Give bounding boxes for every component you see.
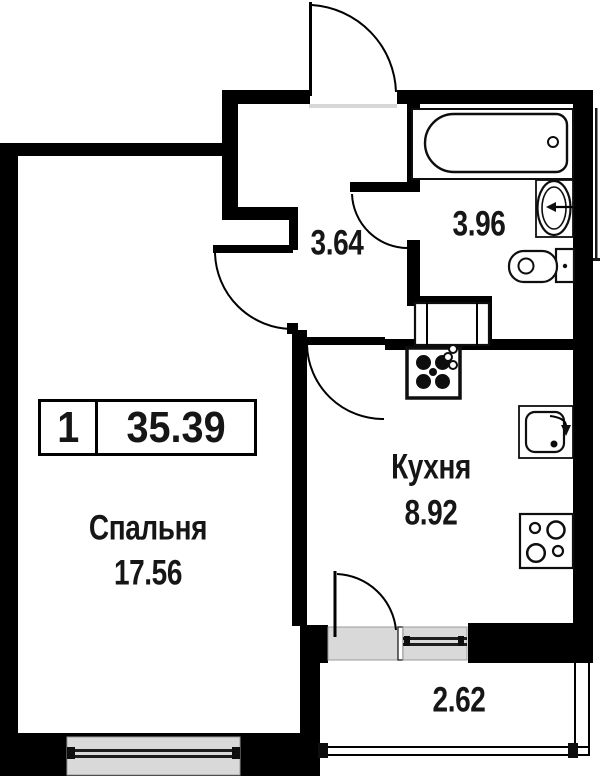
wall-right bbox=[573, 90, 593, 663]
wall-top-left-of-entrance bbox=[222, 90, 310, 104]
toilet-bowl-inner bbox=[519, 259, 534, 274]
stove-burner-icon bbox=[530, 523, 540, 533]
stove-burner-icon bbox=[553, 546, 563, 556]
balcony-rail-end-cap bbox=[568, 743, 578, 758]
badge-rooms-count: 1 bbox=[41, 402, 98, 453]
wall-hall-step-vertical bbox=[222, 90, 238, 220]
balcony-window-glazing-line bbox=[403, 637, 467, 640]
stove-burner-icon bbox=[527, 544, 545, 562]
bedroom-door-swing-arc bbox=[215, 253, 292, 329]
bedroom-window-glazing-line bbox=[67, 749, 240, 752]
fan-petal-icon bbox=[435, 374, 450, 389]
riser-pipe-icon bbox=[444, 353, 452, 361]
badge-rooms-count-value: 1 bbox=[57, 406, 79, 450]
washbasin bbox=[536, 180, 573, 237]
floor-plan: 1 35.39 3.64 3.96 Кухня 8.92 Спальня 17.… bbox=[0, 0, 600, 776]
balcony-window-glazing-line bbox=[403, 643, 467, 646]
bedroom-area-label: 17.56 bbox=[114, 556, 182, 591]
bathroom-door-leaf bbox=[350, 182, 410, 192]
wall-kitchen-bottom-right bbox=[468, 623, 593, 663]
badge-total-area-value: 35.39 bbox=[126, 406, 225, 450]
riser-pipe-icon bbox=[449, 345, 457, 353]
bathroom-area-label: 3.96 bbox=[453, 207, 506, 242]
entrance-door-swing-arc bbox=[312, 5, 396, 92]
kitchen-door-leaf bbox=[305, 337, 385, 345]
stove-burner-icon bbox=[548, 522, 565, 539]
stove-body bbox=[520, 514, 573, 568]
bathtub bbox=[412, 109, 573, 179]
wall-hall-shelf bbox=[222, 207, 298, 220]
toilet-tank-dot-icon bbox=[563, 264, 567, 268]
balcony-block-jamb bbox=[398, 627, 403, 660]
bathtub-basin bbox=[425, 114, 567, 172]
balcony-window-end-cap bbox=[404, 636, 410, 646]
balcony-area-label: 2.62 bbox=[433, 683, 486, 718]
wall-bedroom-right bbox=[292, 330, 307, 626]
washing-machine bbox=[415, 303, 489, 345]
wall-bedroom-top bbox=[0, 143, 238, 156]
bedroom-name-label: Спальня bbox=[89, 511, 207, 546]
fan-center-icon bbox=[429, 368, 437, 376]
toilet bbox=[509, 249, 574, 282]
balcony-door-panel bbox=[328, 627, 398, 660]
apartment-badge: 1 35.39 bbox=[38, 399, 257, 456]
badge-total-area: 35.39 bbox=[98, 402, 254, 453]
wall-left bbox=[0, 143, 18, 776]
kitchen-sink-drain-icon bbox=[551, 441, 558, 448]
balcony-window-end-cap bbox=[458, 636, 464, 646]
fan-petal-icon bbox=[416, 374, 431, 389]
kitchen-area-label: 8.92 bbox=[405, 496, 458, 531]
entrance-threshold bbox=[309, 104, 397, 108]
fan-petal-icon bbox=[416, 355, 431, 370]
bedroom-door-leaf bbox=[213, 245, 293, 253]
balcony-door-swing-arc bbox=[337, 574, 396, 630]
bedroom-window-end-cap bbox=[232, 747, 240, 759]
hallway-area-label: 3.64 bbox=[311, 226, 364, 261]
kitchen-door-swing-arc bbox=[307, 345, 384, 419]
kitchen-name-label: Кухня bbox=[391, 450, 471, 485]
floor-plan-drawing bbox=[0, 0, 600, 776]
wall-top-right-of-entrance bbox=[397, 90, 593, 104]
wall-right-outer-edge-line bbox=[595, 108, 598, 261]
riser-pipe-icon bbox=[449, 361, 457, 369]
bedroom-window-glazing-line bbox=[67, 755, 240, 758]
ventilation-fan bbox=[407, 345, 460, 398]
wall-right-outer-tick bbox=[593, 258, 600, 261]
kitchen-sink bbox=[519, 406, 573, 458]
balcony-rail-end-cap bbox=[318, 743, 328, 758]
bathtub-drain-icon bbox=[548, 137, 558, 147]
bedroom-window-end-cap bbox=[67, 747, 75, 759]
stove bbox=[520, 514, 573, 568]
